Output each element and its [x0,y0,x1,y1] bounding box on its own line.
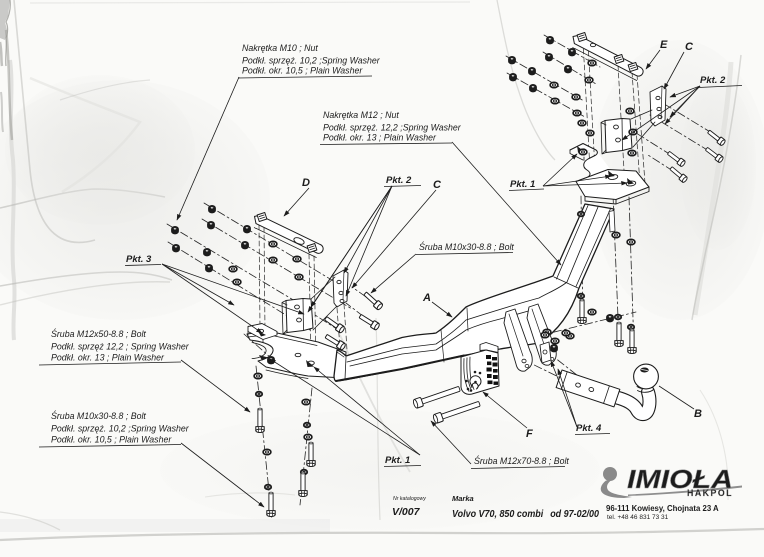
svg-text:Podkł. sprzęż 12,2 ; Spring Wa: Podkł. sprzęż 12,2 ; Spring Washer [51,342,190,352]
svg-text:V/007: V/007 [392,506,421,518]
svg-text:Podkł. okr. 10,5 ; Plain Wash: Podkł. okr. 10,5 ; Plain Washer [242,66,363,76]
svg-text:Nakrętka M12 ; Nut: Nakrętka M12 ; Nut [323,110,399,120]
svg-text:B: B [694,408,702,420]
svg-text:Śruba M12x70-8.8 ; Bolt: Śruba M12x70-8.8 ; Bolt [474,455,569,466]
svg-text:HAKPOL: HAKPOL [687,488,733,499]
svg-text:Pkt. 2: Pkt. 2 [700,75,726,86]
svg-text:E: E [660,39,668,51]
svg-text:A: A [422,292,431,304]
svg-text:Pkt. 3: Pkt. 3 [126,254,152,265]
svg-text:Podkł. okr. 10,5 ; Plain Wash: Podkł. okr. 10,5 ; Plain Washer [51,435,172,445]
svg-text:Podkł. okr. 13 ; Plain Washer: Podkł. okr. 13 ; Plain Washer [51,353,165,363]
svg-text:Śruba M10x30-8.8 ; Bolt: Śruba M10x30-8.8 ; Bolt [51,410,146,421]
svg-text:F: F [526,428,533,440]
svg-text:Nakrętka M10 ; Nut: Nakrętka M10 ; Nut [242,43,318,53]
svg-text:Podkł. sprzęż. 10,2 ;Spring Wa: Podkł. sprzęż. 10,2 ;Spring Washer [51,424,190,434]
svg-text:Pkt. 4: Pkt. 4 [576,423,602,434]
svg-text:Podkł. sprzęż. 12,2 ;Spring Wa: Podkł. sprzęż. 12,2 ;Spring Washer [323,123,462,133]
svg-text:C: C [433,179,442,191]
svg-text:D: D [302,177,310,189]
svg-text:Śruba M12x50-8.8 ; Bolt: Śruba M12x50-8.8 ; Bolt [51,328,146,339]
svg-text:Nr katalogowy: Nr katalogowy [393,496,426,502]
svg-text:Volvo V70, 850 combi od 97-02: Volvo V70, 850 combi od 97-02/00 [452,508,599,520]
svg-text:Pkt. 2: Pkt. 2 [386,175,412,186]
svg-text:tel. +48 46 831 73 31: tel. +48 46 831 73 31 [607,514,669,521]
svg-text:96-111 Kowiesy, Chojnata 23 A: 96-111 Kowiesy, Chojnata 23 A [606,504,719,513]
svg-text:Pkt. 1: Pkt. 1 [385,455,410,466]
svg-text:Podkł. sprzęż. 10,2 ;Spring Wa: Podkł. sprzęż. 10,2 ;Spring Washer [242,56,381,66]
svg-text:Podkł. okr. 13 ; Plain Washer: Podkł. okr. 13 ; Plain Washer [323,133,437,143]
svg-text:Pkt. 1: Pkt. 1 [510,179,535,190]
svg-text:Marka: Marka [452,494,474,503]
svg-text:C: C [685,41,694,53]
svg-text:Śruba M10x30-8.8 ; Bolt: Śruba M10x30-8.8 ; Bolt [419,241,514,252]
